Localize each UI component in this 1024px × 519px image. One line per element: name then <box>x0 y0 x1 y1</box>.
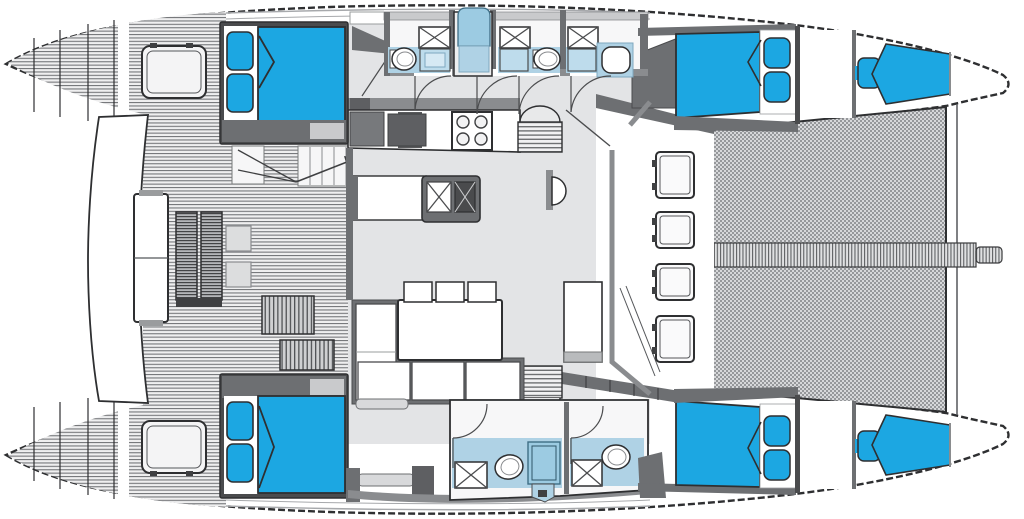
cockpit-ladder <box>176 212 197 300</box>
ladder-base <box>176 298 222 307</box>
walkway <box>800 30 852 118</box>
sink-basin <box>572 460 602 486</box>
starboard-heads <box>450 400 666 502</box>
deck-hatch <box>142 421 206 473</box>
salon-stool <box>436 282 464 302</box>
stair-landing <box>232 146 264 184</box>
hatch-hinge-icon <box>186 43 193 48</box>
floorplan-canvas <box>0 0 1024 519</box>
companionway-port <box>518 106 562 152</box>
vanity-basin <box>425 53 445 67</box>
pillow <box>764 450 790 480</box>
toilet <box>392 48 416 70</box>
shower-tray <box>568 49 596 71</box>
toilet <box>534 48 560 70</box>
catamaran-floorplan <box>0 0 1024 519</box>
double-berth <box>676 32 760 118</box>
hatch-hinge-icon <box>186 471 193 476</box>
sink-basin <box>500 27 530 48</box>
sink-basin <box>455 462 487 488</box>
aft-cockpit <box>88 114 358 405</box>
forward-seat <box>564 282 602 362</box>
side-counter <box>350 176 426 220</box>
sink-basin <box>419 27 450 48</box>
toilet <box>602 47 630 73</box>
cabin-step <box>310 123 344 139</box>
foredeck-hatch <box>652 212 694 248</box>
bulkhead <box>795 26 800 124</box>
pillow <box>764 72 790 102</box>
cockpit-seat <box>226 262 251 287</box>
foredeck-hatch <box>652 152 694 198</box>
pillow <box>227 444 253 482</box>
sink-basin <box>568 27 598 48</box>
deck-gap <box>118 16 129 126</box>
sofa-cushion <box>358 362 410 400</box>
stove-burner-icon <box>475 116 487 128</box>
pillow <box>764 38 790 68</box>
crew-berth <box>872 44 950 104</box>
stove-burner-icon <box>475 133 487 145</box>
walkway <box>800 401 852 489</box>
bowsprit-tip <box>976 247 1002 263</box>
bulkhead <box>795 395 800 493</box>
stove-burner-icon <box>457 133 469 145</box>
slatted-step <box>280 340 334 370</box>
double-berth <box>258 396 345 493</box>
deck-hatch <box>142 46 206 98</box>
galley-wall-band <box>348 98 520 110</box>
forward-seat-base <box>564 352 602 362</box>
table-cap <box>139 190 163 196</box>
heads-partition <box>564 402 569 494</box>
salon-stool <box>468 282 496 302</box>
slatted-bench <box>262 296 314 334</box>
sofa-cushion <box>466 362 520 400</box>
pillow <box>227 32 253 70</box>
shower-floor <box>459 46 489 72</box>
galley-wall-seg <box>350 98 370 110</box>
locker <box>388 114 426 146</box>
foredeck-hatch <box>652 316 694 362</box>
salon-side-wall <box>346 148 353 300</box>
pillow <box>227 402 253 440</box>
pillow <box>764 416 790 446</box>
threshold <box>358 474 414 486</box>
shower-stall <box>454 8 492 76</box>
threshold <box>356 399 408 409</box>
galley-island <box>422 176 480 222</box>
crew-berth <box>872 415 950 475</box>
pillow <box>227 74 253 112</box>
salon-table <box>398 300 502 360</box>
bowsprit-beam <box>714 243 976 267</box>
double-berth <box>258 27 345 122</box>
heads-outer-wall <box>384 12 648 20</box>
deck-gap <box>118 393 129 503</box>
salon-stool <box>404 282 432 302</box>
cabin-step <box>310 379 344 395</box>
foredeck-trampoline <box>712 104 1002 415</box>
shower-tray <box>500 49 528 71</box>
shower-drain-icon <box>538 490 547 497</box>
table-cap <box>139 320 163 326</box>
hatch-hinge-icon <box>150 471 157 476</box>
double-berth <box>676 401 760 487</box>
cockpit-seat <box>226 226 251 251</box>
cockpit-ladder <box>201 212 222 300</box>
locker <box>350 112 384 146</box>
sofa-cushion <box>412 362 464 400</box>
galley-stove <box>452 112 492 150</box>
foredeck-hatch <box>652 264 694 300</box>
stove-burner-icon <box>457 116 469 128</box>
shower-tray <box>528 442 560 484</box>
shower-tray <box>458 8 490 46</box>
hatch-hinge-icon <box>150 43 157 48</box>
